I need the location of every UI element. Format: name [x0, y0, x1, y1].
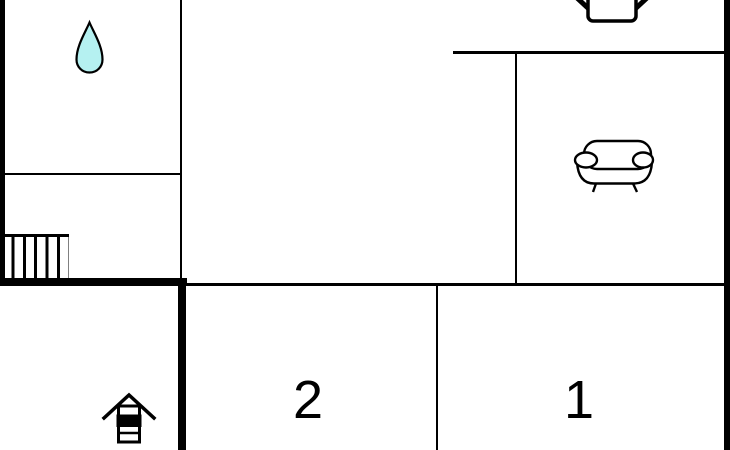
water-drop-icon: [74, 21, 105, 74]
wall-middle-thick-vertical: [178, 278, 186, 450]
chair-icon: [572, 0, 652, 24]
wall-middle-thick-horizontal: [0, 278, 187, 286]
sofa-armrest-left: [575, 153, 597, 168]
sofa-icon: [572, 138, 658, 194]
well-icon: [100, 391, 158, 445]
sofa-leg-left: [593, 184, 596, 193]
wall-lower-horizontal: [186, 283, 730, 286]
well-dark-band: [117, 415, 142, 428]
sofa-leg-right: [633, 184, 637, 193]
room-1-label: 1: [529, 372, 629, 428]
wall-top-right-horizontal: [453, 51, 730, 54]
wall-bathroom-bottom: [0, 173, 182, 175]
wall-living-room-left: [515, 52, 517, 286]
wall-bedroom-divider: [436, 286, 438, 450]
wall-bathroom-right: [180, 0, 182, 278]
chair-seat: [588, 0, 636, 21]
wall-left-outer: [0, 0, 5, 286]
room-2-label: 2: [258, 372, 358, 428]
floor-plan: 2 1: [0, 0, 730, 450]
stairs-icon: [0, 234, 69, 283]
wall-right-outer: [724, 0, 730, 450]
sofa-armrest-right: [633, 153, 653, 168]
water-drop-shape: [77, 23, 103, 73]
